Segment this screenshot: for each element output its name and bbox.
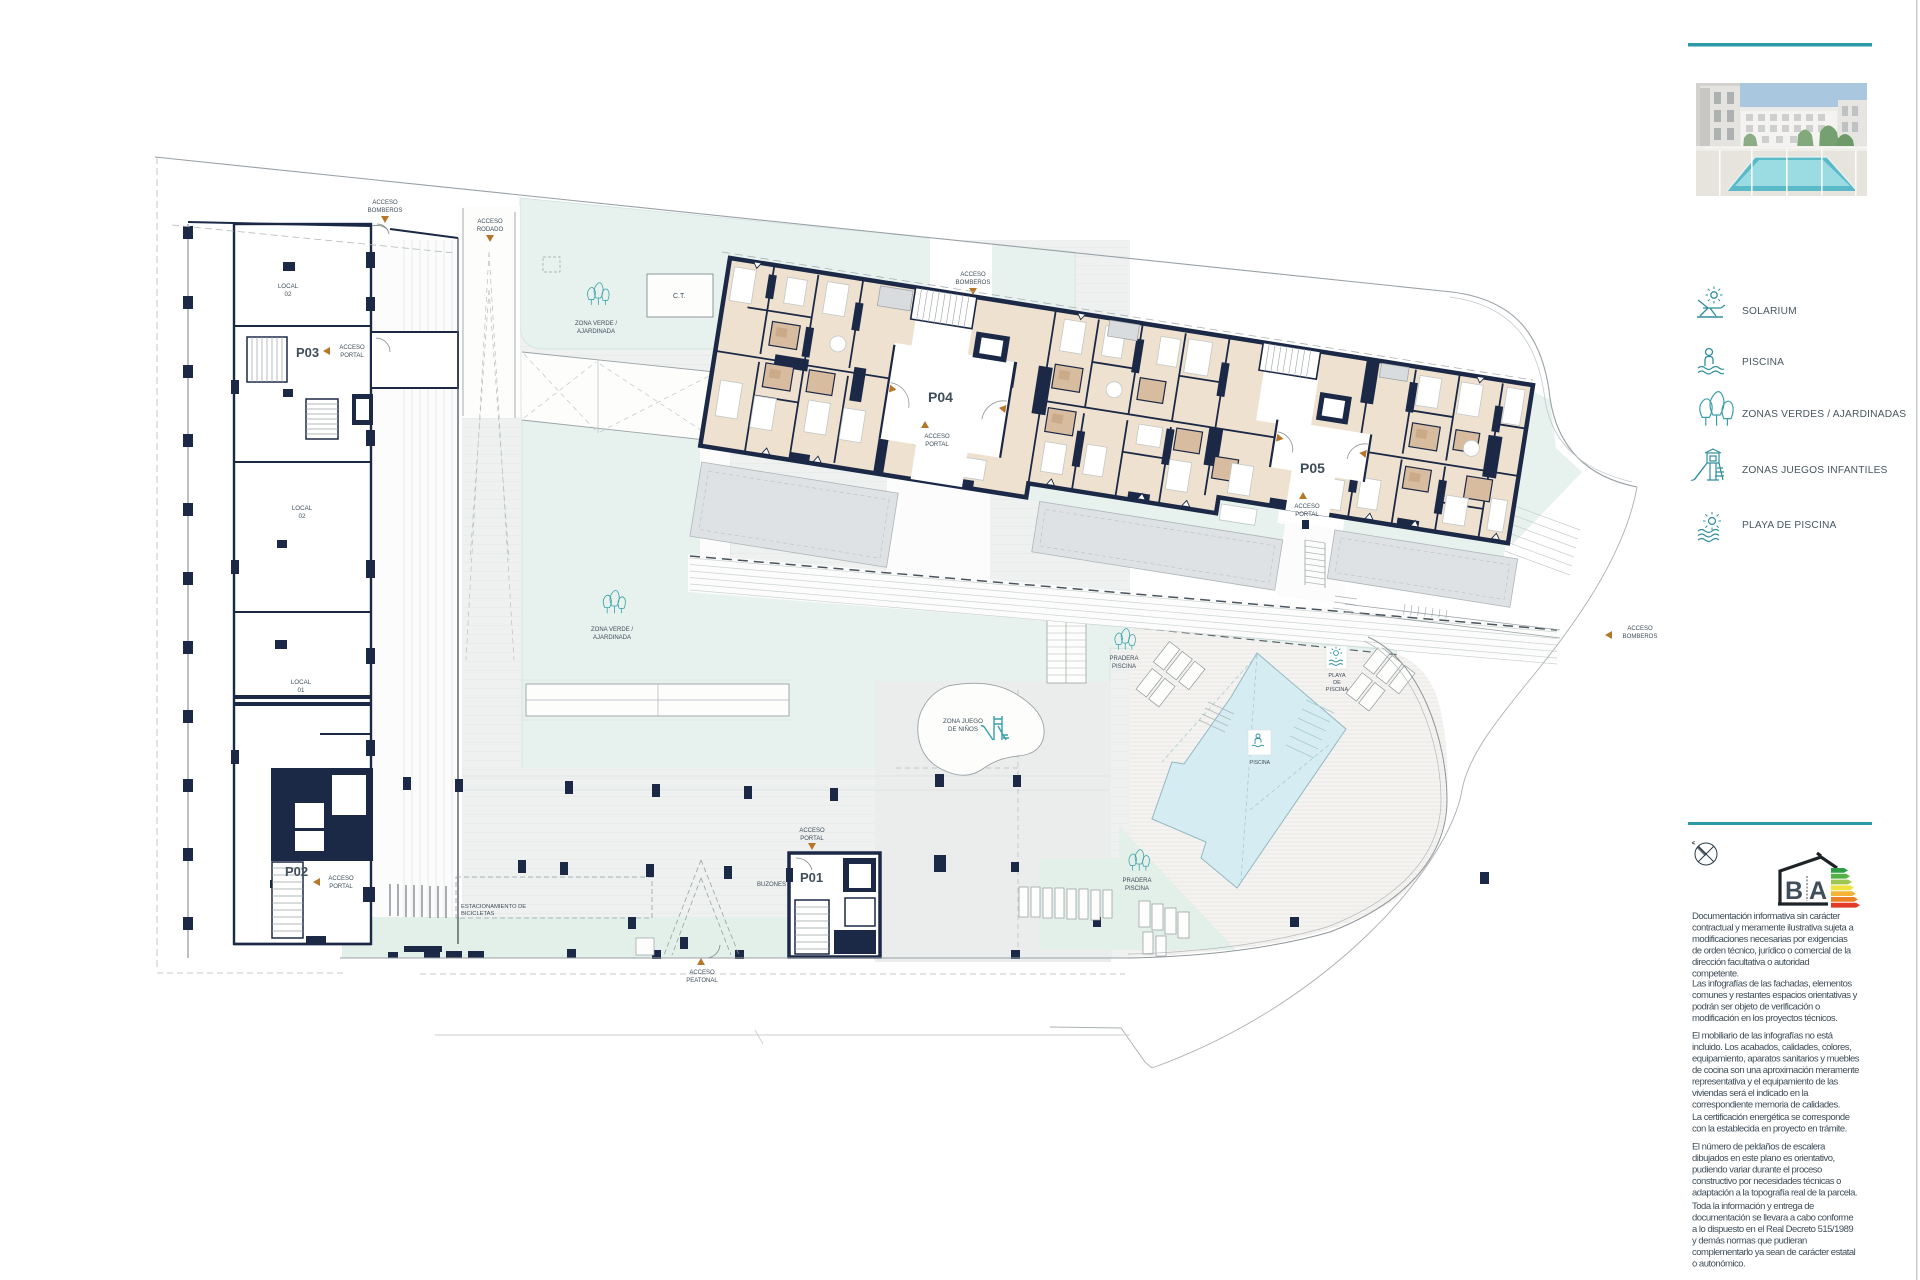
svg-text:BICICLETAS: BICICLETAS [461, 911, 495, 917]
svg-text:correspondiente memoria de cal: correspondiente memoria de calidades. [1692, 1100, 1840, 1111]
svg-text:PRADERA: PRADERA [1122, 878, 1151, 884]
svg-text:P04: P04 [928, 389, 953, 405]
svg-text:PISCINA: PISCINA [1742, 357, 1784, 368]
svg-text:A: A [1809, 877, 1827, 905]
svg-text:constructivo por necesidades t: constructivo por necesidades técnicas o [1692, 1176, 1841, 1187]
svg-text:P02: P02 [285, 864, 308, 879]
svg-text:adaptación a la topografía rea: adaptación a la topografía real de la pa… [1692, 1188, 1857, 1199]
svg-text:documentación se llevara a cab: documentación se llevara a cabo conforme [1692, 1213, 1853, 1224]
svg-text:P01: P01 [800, 870, 823, 885]
svg-text:PORTAL: PORTAL [340, 353, 364, 359]
svg-text:RODADO: RODADO [477, 227, 504, 233]
svg-text:de cocina son una aproximación: de cocina son una aproximación meramente [1692, 1065, 1859, 1076]
svg-text:LOCAL: LOCAL [278, 283, 299, 290]
svg-text:02: 02 [299, 513, 306, 520]
svg-text:BOMBEROS: BOMBEROS [956, 280, 991, 286]
svg-text:modificaciones necesarias por: modificaciones necesarias por exigencias [1692, 934, 1848, 945]
svg-text:PISCINA: PISCINA [1250, 760, 1271, 766]
svg-text:Documentación informativa sin: Documentación informativa sin carácter [1692, 911, 1840, 922]
svg-text:ACCESO: ACCESO [477, 219, 503, 225]
svg-text:ZONA JUEGO: ZONA JUEGO [943, 718, 983, 725]
svg-text:contractual y meramente ilustr: contractual y meramente ilustrativa suje… [1692, 923, 1854, 934]
svg-text:Las infografías de las fachada: Las infografías de las fachadas, element… [1692, 979, 1852, 990]
svg-text:El número de peldaños de escal: El número de peldaños de escalera [1692, 1142, 1826, 1153]
svg-text:PORTAL: PORTAL [800, 836, 824, 842]
svg-text:ACCESO: ACCESO [339, 345, 365, 351]
svg-text:con la establecida en proyecto: con la establecida en proyecto en trámit… [1692, 1124, 1847, 1135]
svg-text:PISCINA: PISCINA [1112, 664, 1136, 670]
svg-text:PLAYA: PLAYA [1328, 673, 1345, 679]
svg-text:o autonómico.: o autonómico. [1692, 1259, 1745, 1270]
svg-text:P05: P05 [1300, 460, 1325, 476]
svg-text:comunes y restantes espacios o: comunes y restantes espacios orientativa… [1692, 990, 1858, 1001]
svg-text:B: B [1785, 877, 1803, 905]
svg-text:representativa y el equipamien: representativa y el equipamiento de las [1692, 1077, 1839, 1088]
svg-text:PISCINA: PISCINA [1125, 886, 1149, 892]
svg-text:AJARDINADA: AJARDINADA [593, 635, 631, 641]
svg-text:PORTAL: PORTAL [1295, 512, 1319, 518]
svg-text:DE NIÑOS: DE NIÑOS [948, 726, 978, 733]
svg-text:complementarlo ya sean de cará: complementarlo ya sean de carácter estat… [1692, 1247, 1856, 1258]
svg-text:modificación en los proyectos: modificación en los proyectos técnicos. [1692, 1013, 1837, 1024]
svg-text:dibujados en este plano es ori: dibujados en este plano es orientativo, [1692, 1153, 1835, 1164]
svg-text:01: 01 [298, 687, 305, 694]
svg-text:pudiendo variar durante el pro: pudiendo variar durante el proceso [1692, 1165, 1822, 1176]
svg-text:BUZONES: BUZONES [757, 882, 786, 888]
svg-text:ACCESO: ACCESO [372, 200, 398, 206]
svg-text:ZONAS VERDES / AJARDINADAS: ZONAS VERDES / AJARDINADAS [1742, 409, 1906, 420]
svg-text:DE: DE [1333, 680, 1341, 686]
svg-text:PEATONAL: PEATONAL [686, 978, 718, 984]
svg-text:SOLARIUM: SOLARIUM [1742, 306, 1797, 317]
svg-text:BOMBEROS: BOMBEROS [368, 208, 403, 214]
svg-text:ACCESO: ACCESO [1294, 504, 1320, 510]
svg-text:podrán ser objeto de verificac: podrán ser objeto de verificación o [1692, 1002, 1820, 1013]
svg-text:LOCAL: LOCAL [291, 679, 312, 686]
svg-text:ACCESO: ACCESO [328, 876, 354, 882]
svg-text:02: 02 [285, 291, 292, 298]
svg-text:ZONA VERDE /: ZONA VERDE / [575, 321, 617, 327]
svg-text:dirección facultativa o autori: dirección facultativa o autoridad [1692, 957, 1809, 968]
svg-text:y demás normas que pudieran: y demás normas que pudieran [1692, 1236, 1807, 1247]
svg-text:P03: P03 [296, 345, 319, 360]
svg-text:La certificación energética se: La certificación energética se correspon… [1692, 1112, 1850, 1123]
svg-text:ACCESO: ACCESO [960, 272, 986, 278]
svg-text:LOCAL: LOCAL [292, 505, 313, 512]
svg-text:El mobiliario de las infografí: El mobiliario de las infografías no está [1692, 1031, 1834, 1042]
svg-text:a lo dispuesto en el Real Decr: a lo dispuesto en el Real Decreto 515/19… [1692, 1224, 1853, 1235]
svg-text:viviendas será el indicado en: viviendas será el indicado en la [1692, 1088, 1809, 1099]
svg-text:ACCESO: ACCESO [689, 970, 715, 976]
svg-text:ACCESO: ACCESO [1627, 626, 1653, 632]
svg-text:AJARDINADA: AJARDINADA [577, 329, 615, 335]
svg-text:ZONAS JUEGOS INFANTILES: ZONAS JUEGOS INFANTILES [1742, 465, 1888, 476]
svg-text:ZONA VERDE /: ZONA VERDE / [591, 627, 633, 633]
svg-text:PRADERA: PRADERA [1109, 656, 1138, 662]
svg-text:equipamiento, aparatos sanitar: equipamiento, aparatos sanitarios y mueb… [1692, 1054, 1860, 1065]
svg-text:de orden técnico, jurídico o c: de orden técnico, jurídico o comercial d… [1692, 946, 1852, 957]
svg-text:ACCESO: ACCESO [799, 828, 825, 834]
svg-text:PORTAL: PORTAL [925, 442, 949, 448]
svg-text:ACCESO: ACCESO [924, 434, 950, 440]
svg-text:incluido. Los acabados, calida: incluido. Los acabados, calidades, color… [1692, 1042, 1851, 1053]
svg-text:BOMBEROS: BOMBEROS [1623, 634, 1658, 640]
svg-text:PLAYA DE PISCINA: PLAYA DE PISCINA [1742, 520, 1837, 531]
svg-text:C.T.: C.T. [673, 293, 686, 300]
svg-text:PORTAL: PORTAL [329, 884, 353, 890]
svg-text:ESTACIONAMIENTO DE: ESTACIONAMIENTO DE [461, 904, 526, 910]
svg-text:Toda la información y entrega: Toda la información y entrega de [1692, 1201, 1814, 1212]
svg-text:PISCINA: PISCINA [1326, 687, 1349, 693]
